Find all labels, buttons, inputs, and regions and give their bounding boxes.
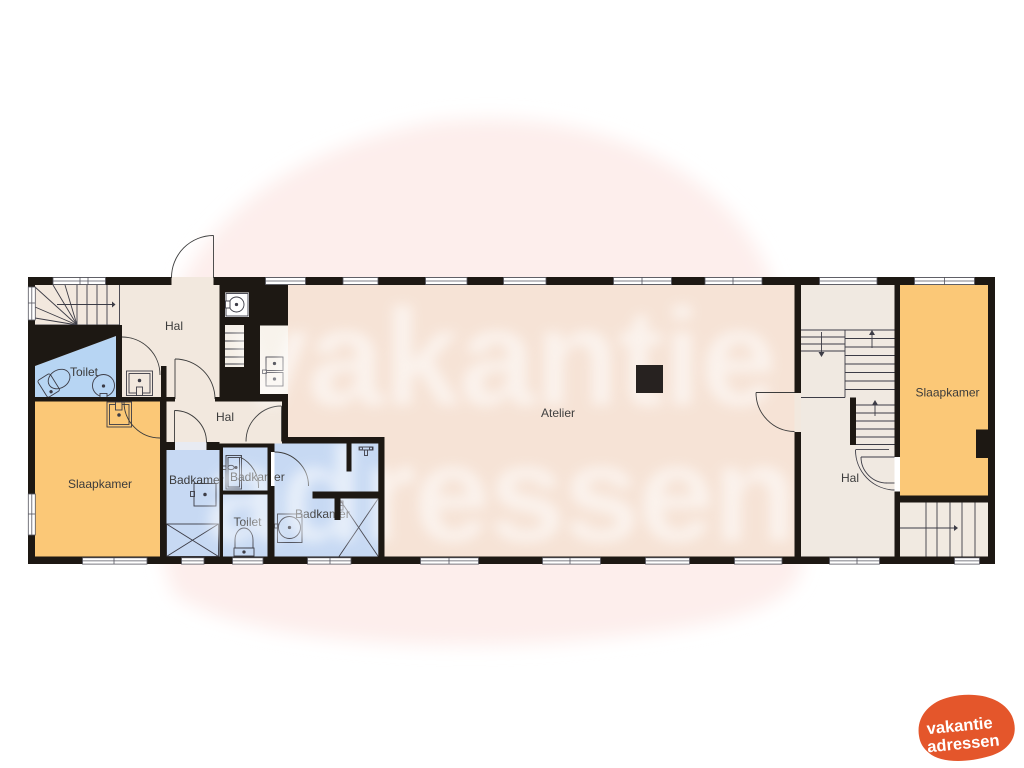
svg-text:Slaapkamer: Slaapkamer: [916, 386, 980, 400]
svg-text:Hal: Hal: [841, 471, 859, 485]
svg-text:Hal: Hal: [165, 319, 183, 333]
svg-text:Toilet: Toilet: [70, 365, 99, 379]
svg-text:vakantie: vakantie: [232, 281, 776, 435]
svg-text:Slaapkamer: Slaapkamer: [68, 477, 132, 491]
